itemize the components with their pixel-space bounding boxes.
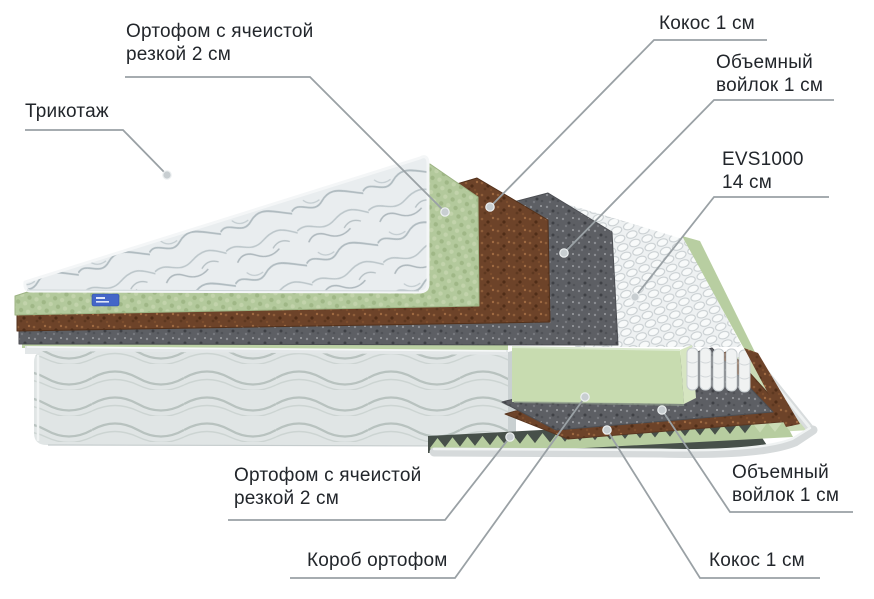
brand-tag — [92, 294, 119, 306]
label-kokos-bottom: Кокос 1 см — [709, 549, 805, 572]
label-line: Короб ортофом — [307, 549, 448, 572]
label-line: 14 см — [722, 171, 804, 194]
label-line: Ортофом с ячеистой — [126, 20, 313, 43]
label-felt-top: Объемный войлок 1 см — [716, 51, 823, 97]
label-line: Объемный — [732, 461, 839, 484]
leader-trikotazh — [25, 130, 167, 175]
label-line: войлок 1 см — [716, 74, 823, 97]
label-ortofoam-top: Ортофом с ячеистой резкой 2 см — [126, 20, 313, 66]
label-korob: Короб ортофом — [307, 549, 448, 572]
label-felt-bottom: Объемный войлок 1 см — [732, 461, 839, 507]
label-kokos-top: Кокос 1 см — [659, 12, 755, 35]
label-line: Трикотаж — [25, 100, 109, 123]
label-line: резкой 2 см — [126, 43, 313, 66]
label-line: Объемный — [716, 51, 823, 74]
upper-layer-stack — [15, 157, 742, 347]
label-line: Кокос 1 см — [709, 549, 805, 572]
layer-korob-block — [512, 345, 696, 405]
mattress-layers-diagram: Ортофом с ячеистой резкой 2 см Трикотаж … — [0, 0, 874, 599]
label-evs: EVS1000 14 см — [722, 148, 804, 194]
layer-trikotazh — [25, 157, 428, 292]
label-line: резкой 2 см — [234, 487, 421, 510]
label-line: войлок 1 см — [732, 484, 839, 507]
label-line: Ортофом с ячеистой — [234, 464, 421, 487]
label-line: EVS1000 — [722, 148, 804, 171]
spring-columns — [687, 348, 750, 392]
base-front-fabric — [34, 351, 508, 445]
label-trikotazh: Трикотаж — [25, 100, 109, 123]
label-line: Кокос 1 см — [659, 12, 755, 35]
label-ortofoam-bottom: Ортофом с ячеистой резкой 2 см — [234, 464, 421, 510]
